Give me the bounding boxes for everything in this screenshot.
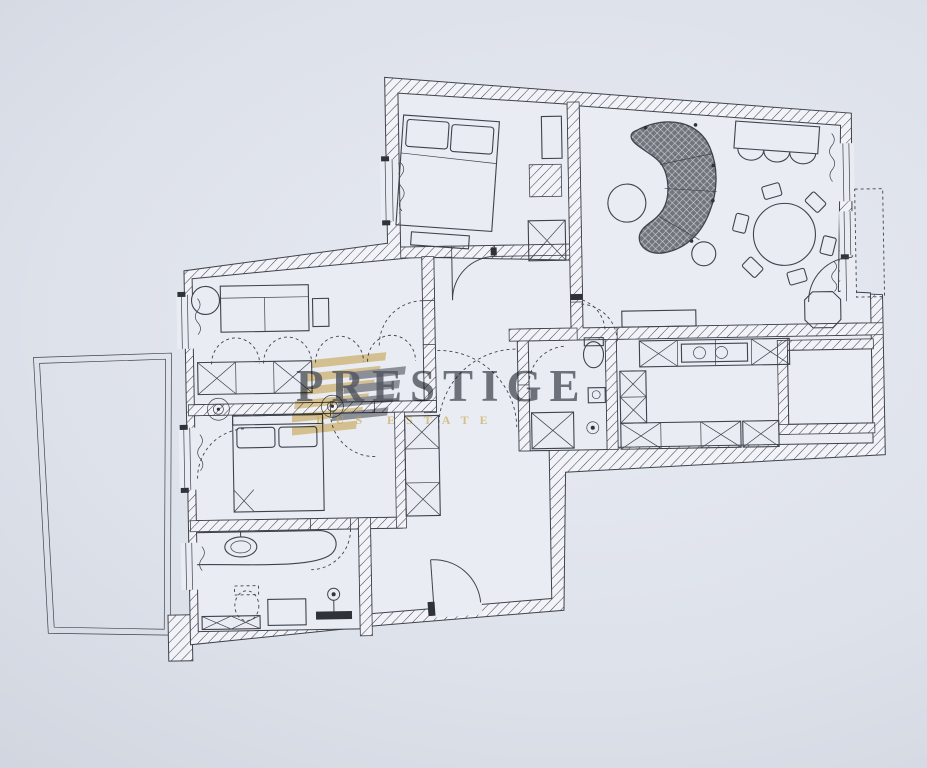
terrace [33,353,176,637]
wall-step [168,615,193,661]
floor-plan-photo: PRESTIGE RUS ESTATE [0,0,927,768]
wc [528,340,607,451]
window-living-2 [839,211,856,255]
threshold [491,247,497,255]
terrace-door [179,425,197,493]
threshold [570,294,582,300]
living-room [579,101,871,328]
window-bathroom [181,543,199,590]
utility-room [777,339,875,435]
balcony [855,189,885,297]
wardrobe-box [529,164,562,197]
bedroom-2 [195,412,399,521]
floor-plan-drawing [0,0,927,768]
balcony-door [840,254,857,301]
window-living-1 [838,143,855,201]
